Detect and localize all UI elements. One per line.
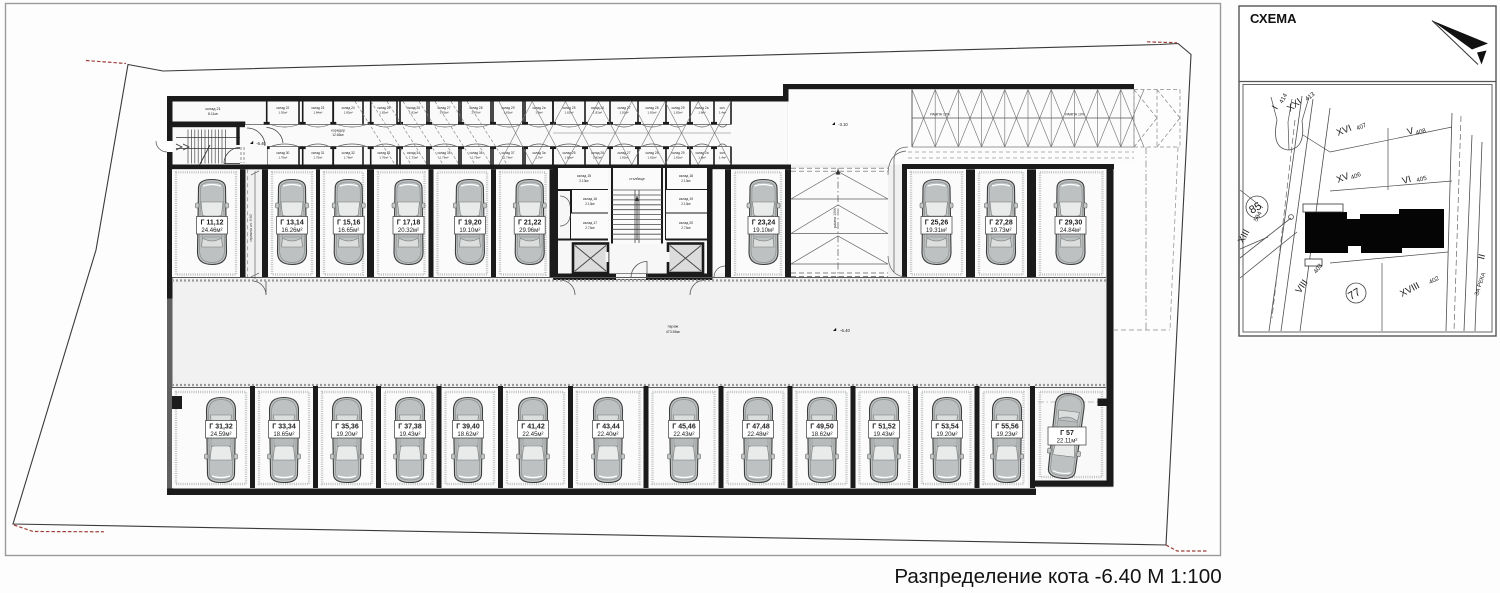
svg-text:1.75м²: 1.75м² [313, 156, 322, 160]
svg-text:22.48м²: 22.48м² [747, 432, 768, 438]
svg-text:24.46м²: 24.46м² [201, 228, 222, 234]
svg-text:РАМПА 10%: РАМПА 10% [1065, 113, 1085, 117]
svg-text:Г 47,48: Г 47,48 [746, 424, 770, 431]
svg-text:Г 17,18: Г 17,18 [397, 220, 421, 227]
svg-text:склад 29: склад 29 [672, 106, 685, 110]
svg-text:22.40м²: 22.40м² [597, 432, 618, 438]
svg-text:склад 36: склад 36 [470, 151, 483, 155]
svg-text:Г 33,34: Г 33,34 [272, 424, 296, 431]
svg-text:склад 32: склад 32 [342, 151, 355, 155]
svg-text:склад 34: склад 34 [407, 151, 420, 155]
svg-text:склад 22: склад 22 [276, 106, 289, 110]
svg-text:29.96м²: 29.96м² [519, 228, 540, 234]
svg-text:склад 27: склад 27 [618, 151, 631, 155]
svg-text:8.11м²: 8.11м² [208, 112, 219, 116]
svg-text:Г 57: Г 57 [1060, 430, 1074, 437]
svg-text:19.73м²: 19.73м² [990, 228, 1011, 234]
svg-text:18.62м²: 18.62м² [811, 432, 832, 438]
svg-text:Г 41,42: Г 41,42 [521, 424, 545, 431]
svg-text:18.62м²: 18.62м² [457, 432, 478, 438]
svg-text:склад 26: склад 26 [407, 106, 420, 110]
svg-text:1.92м²: 1.92м² [278, 111, 287, 115]
svg-text:склад 29: склад 29 [672, 151, 685, 155]
svg-text:1.76м²: 1.76м² [379, 156, 388, 160]
svg-text:1.82м²: 1.82м² [674, 111, 683, 115]
svg-text:склад 25: склад 25 [563, 151, 576, 155]
svg-text:1.76м²: 1.76м² [278, 156, 287, 160]
svg-text:СХЕМА: СХЕМА [1250, 11, 1297, 26]
svg-text:склад 2а: склад 2а [533, 106, 546, 110]
svg-text:22.43м²: 22.43м² [673, 432, 694, 438]
svg-text:склад 30: склад 30 [276, 151, 289, 155]
svg-text:Г 13,14: Г 13,14 [280, 220, 304, 227]
svg-text:склад 16: склад 16 [583, 197, 597, 201]
svg-text:19.43м²: 19.43м² [873, 432, 894, 438]
svg-text:19.31м²: 19.31м² [926, 228, 947, 234]
svg-text:1.82м²: 1.82м² [648, 156, 657, 160]
svg-text:1.76м²: 1.76м² [440, 156, 449, 160]
svg-text:Г 51,52: Г 51,52 [872, 424, 896, 431]
svg-text:Г 23,24: Г 23,24 [752, 220, 776, 227]
svg-text:склад 24: склад 24 [342, 106, 355, 110]
svg-text:Г 43,44: Г 43,44 [596, 424, 620, 431]
svg-text:2.13м²: 2.13м² [585, 202, 594, 206]
svg-text:Г 21,22: Г 21,22 [518, 220, 542, 227]
svg-text:склад 28: склад 28 [646, 106, 659, 110]
svg-text:2.74м²: 2.74м² [681, 226, 690, 230]
svg-text:склад 21: склад 21 [205, 107, 220, 111]
svg-text:склад 37: склад 37 [502, 151, 515, 155]
svg-text:Г 55,56: Г 55,56 [995, 424, 1019, 431]
svg-text:склад 15: склад 15 [577, 174, 591, 178]
svg-text:склад 31: склад 31 [311, 151, 324, 155]
svg-text:2.13м²: 2.13м² [681, 179, 690, 183]
svg-text:склад 2а: склад 2а [696, 151, 709, 155]
svg-text:19.10м²: 19.10м² [459, 228, 480, 234]
svg-text:1.82м²: 1.82м² [648, 111, 657, 115]
svg-text:Г 45,46: Г 45,46 [672, 424, 696, 431]
svg-text:22.45м²: 22.45м² [522, 432, 543, 438]
svg-text:Г 39,40: Г 39,40 [456, 424, 480, 431]
svg-text:1.82м²: 1.82м² [409, 111, 418, 115]
svg-text:склад 25: склад 25 [377, 106, 390, 110]
svg-text:склад 23: склад 23 [311, 106, 324, 110]
svg-text:Г 37,38: Г 37,38 [398, 424, 422, 431]
svg-text:Г 15,16: Г 15,16 [337, 220, 361, 227]
svg-text:1.82м²: 1.82м² [344, 111, 353, 115]
svg-text:склад 18: склад 18 [679, 174, 693, 178]
svg-text:2.13м²: 2.13м² [579, 179, 588, 183]
svg-text:Г 31,32: Г 31,32 [209, 424, 233, 431]
svg-text:18.65м²: 18.65м² [273, 432, 294, 438]
svg-text:гаражна кл. 9.60: гаражна кл. 9.60 [249, 214, 253, 241]
svg-text:склад 27: склад 27 [618, 106, 631, 110]
svg-text:1.82м²: 1.82м² [593, 111, 602, 115]
svg-text:19.20м²: 19.20м² [936, 432, 957, 438]
svg-text:19.10м²: 19.10м² [753, 228, 774, 234]
svg-text:РАМПА 10%: РАМПА 10% [930, 113, 950, 117]
svg-text:16.65м²: 16.65м² [338, 228, 359, 234]
svg-text:склад 28: склад 28 [646, 151, 659, 155]
svg-text:Г 19,20: Г 19,20 [458, 220, 482, 227]
svg-text:склад 19: склад 19 [679, 197, 693, 201]
svg-text:2.13м²: 2.13м² [681, 202, 690, 206]
svg-text:Г 29,30: Г 29,30 [1059, 220, 1083, 227]
svg-text:скл.: скл. [720, 106, 726, 110]
svg-text:1.82м²: 1.82м² [620, 111, 629, 115]
svg-text:19.20м²: 19.20м² [336, 432, 357, 438]
svg-text:рампа 15%: рампа 15% [833, 208, 837, 228]
svg-text:-6.40: -6.40 [840, 328, 851, 333]
svg-text:1.75м²: 1.75м² [409, 156, 418, 160]
svg-text:Г 35,36: Г 35,36 [335, 424, 359, 431]
svg-text:16.26м²: 16.26м² [281, 228, 302, 234]
svg-text:19.23м²: 19.23м² [996, 432, 1017, 438]
svg-text:-6.40: -6.40 [256, 141, 266, 146]
svg-text:1.75м²: 1.75м² [472, 156, 481, 160]
svg-text:473.55м²: 473.55м² [666, 330, 681, 334]
svg-text:1.82м²: 1.82м² [674, 156, 683, 160]
svg-text:1.82м²: 1.82м² [379, 111, 388, 115]
svg-text:Г 27,28: Г 27,28 [989, 220, 1013, 227]
svg-text:20.32м²: 20.32м² [398, 228, 419, 234]
svg-text:1.4м²: 1.4м² [719, 156, 726, 160]
svg-text:2.74м²: 2.74м² [585, 226, 594, 230]
svg-text:19.43м²: 19.43м² [399, 432, 420, 438]
svg-text:22.11м²: 22.11м² [1057, 439, 1078, 445]
svg-text:Г 49,50: Г 49,50 [810, 424, 834, 431]
svg-text:стълбище: стълбище [629, 177, 645, 181]
svg-text:коридор: коридор [331, 129, 345, 133]
svg-text:Г 53,54: Г 53,54 [935, 424, 959, 431]
svg-text:12.66м²: 12.66м² [332, 133, 345, 137]
svg-text:-3.10: -3.10 [838, 122, 848, 127]
svg-text:склад 35: склад 35 [438, 151, 451, 155]
svg-text:1.76м²: 1.76м² [344, 156, 353, 160]
svg-text:1.84м²: 1.84м² [313, 111, 322, 115]
svg-text:24.59м²: 24.59м² [210, 432, 231, 438]
svg-text:Г 25,26: Г 25,26 [925, 220, 949, 227]
svg-text:Г 11,12: Г 11,12 [200, 220, 223, 227]
svg-text:Разпределение кота -6.40 М 1:1: Разпределение кота -6.40 М 1:100 [894, 565, 1221, 588]
svg-text:1.76м²: 1.76м² [504, 156, 513, 160]
svg-text:склад 17: склад 17 [583, 221, 597, 225]
svg-text:24.84м²: 24.84м² [1060, 228, 1081, 234]
svg-text:склад 20: склад 20 [679, 221, 693, 225]
svg-text:гараж: гараж [668, 324, 679, 329]
